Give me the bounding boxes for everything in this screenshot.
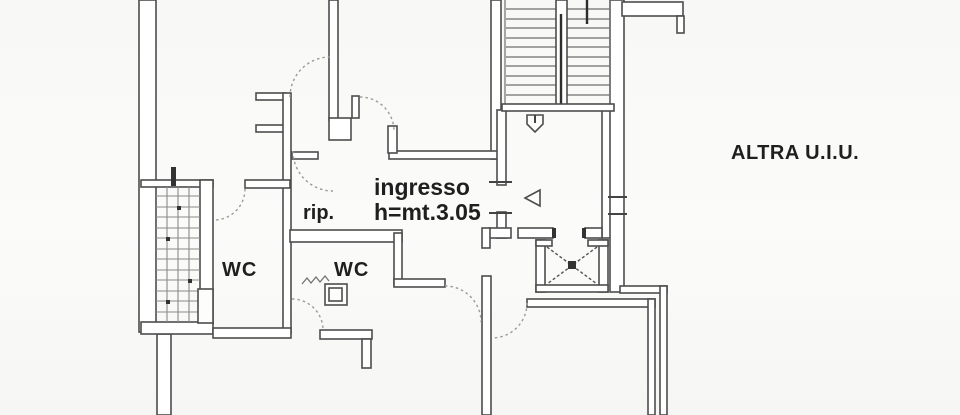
label-wc-left: WC <box>222 259 257 281</box>
elevator-door-jamb-right <box>588 240 608 246</box>
wall-lobby-left-upper <box>482 228 490 248</box>
wall-wc1-top <box>245 180 290 188</box>
wall-bottomright-top <box>527 299 655 307</box>
wall-landing-left-upper <box>497 110 506 185</box>
wall-corridor-top <box>389 151 502 159</box>
staircase <box>502 0 614 132</box>
wall-wc2-bottom <box>320 330 372 339</box>
balcony-tick <box>171 167 176 186</box>
pillar <box>329 118 351 140</box>
wall-wc2-top <box>290 230 402 242</box>
wall-vestibule-stub-2 <box>256 125 285 132</box>
wall-bottomright-inner <box>648 299 655 415</box>
wall-corridor-bottom <box>394 279 445 287</box>
wall-stub-corridor <box>388 126 397 153</box>
label-height: h=mt.3.05 <box>374 199 481 225</box>
wall-topright-l <box>622 2 683 16</box>
wall-landing-bottom-right <box>585 228 602 238</box>
wall-bottomright-outer-v <box>660 286 667 415</box>
wall-below-balcony <box>157 334 171 415</box>
entrance-arrow-icon <box>525 190 540 206</box>
elevator-door-jamb-left <box>536 240 552 246</box>
label-rip: rip. <box>303 202 334 224</box>
label-wc-right: WC <box>334 259 369 281</box>
label-other-unit: ALTRA U.I.U. <box>731 142 859 164</box>
wc-squiggle <box>302 276 329 284</box>
wall-bottom-divider <box>482 276 491 415</box>
floor-plan-sheet: ingresso h=mt.3.05 WC WC rip. ALTRA U.I.… <box>0 0 960 415</box>
door-jamb-dot <box>552 228 556 238</box>
stair-bottom-edge <box>502 104 614 111</box>
floor-plan-svg: ingresso h=mt.3.05 WC WC rip. ALTRA U.I.… <box>0 0 960 415</box>
wall-rip-top <box>292 152 318 159</box>
door-arc <box>214 189 245 220</box>
wall-wc1-bottom <box>213 328 291 338</box>
elevator <box>536 240 608 292</box>
door-arc <box>445 286 481 322</box>
wall-landing-bottom-mid <box>518 228 553 238</box>
wall-topright-return <box>677 16 684 33</box>
door-jamb-dot <box>582 228 586 238</box>
wall-landing-bottom-left <box>489 228 511 238</box>
door-arc <box>290 57 330 97</box>
wall-stub-down <box>362 339 371 368</box>
wall-wc2-right <box>394 233 402 285</box>
elevator-center-dot <box>568 261 576 269</box>
wall-left-outer <box>139 0 156 332</box>
door-arc <box>492 303 527 338</box>
door-arc <box>292 299 323 330</box>
wall-wc-spine <box>283 93 291 333</box>
wall-property-right <box>610 0 624 292</box>
balcony-window <box>198 289 213 323</box>
wc-fixture-inner <box>329 288 342 301</box>
wall-vestibule-stub-1 <box>256 93 285 100</box>
elevator-wall-bottom <box>536 285 608 292</box>
wall-topleft-room-right <box>329 0 338 120</box>
label-ingresso: ingresso <box>374 174 470 200</box>
wall-door-jamb <box>352 96 359 118</box>
